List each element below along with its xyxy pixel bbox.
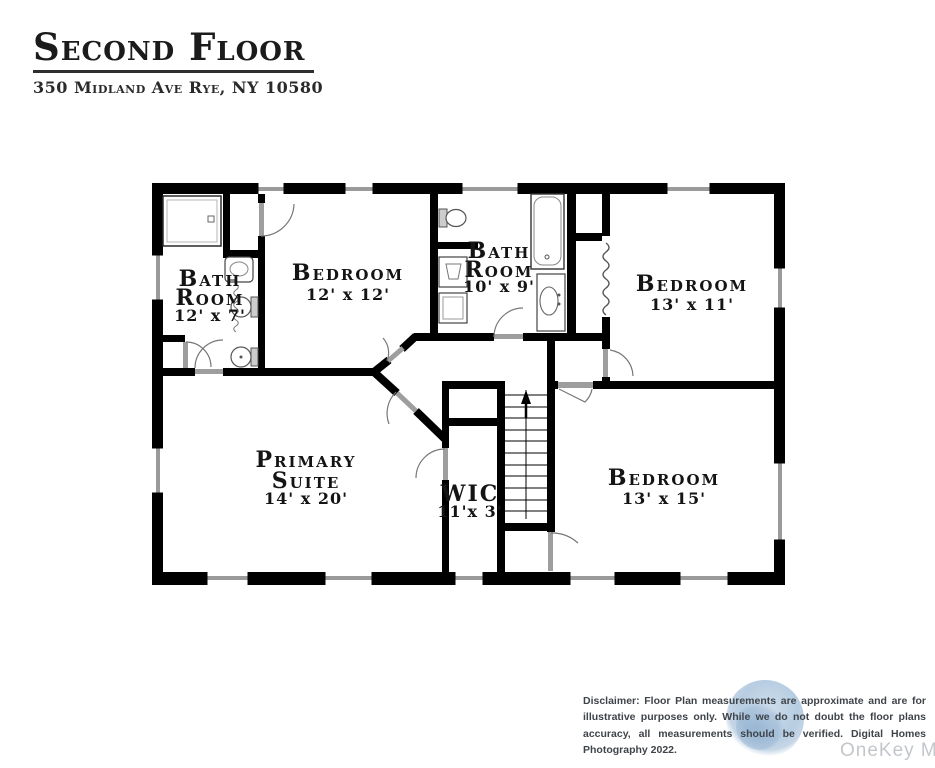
wall-segment xyxy=(449,418,497,426)
room-dims-bedroom-13x15: 13' x 15' xyxy=(622,489,706,508)
room-dims-bedroom-13x11: 13' x 11' xyxy=(650,295,734,314)
door xyxy=(416,445,449,483)
staircase xyxy=(505,390,547,519)
wall-segment xyxy=(414,333,494,341)
window xyxy=(774,266,785,310)
onekey-mls-watermark: OneKey MLS xyxy=(840,740,935,762)
vanity xyxy=(537,274,565,331)
room-dims-bedroom-12x12: 12' x 12' xyxy=(306,285,390,304)
room-dims-wic: 11'x 3' xyxy=(437,502,502,521)
floor-plan-drawing: Bath Room 12' x 7' Bedroom 12' x 12' Bat… xyxy=(0,0,935,768)
wall-segment xyxy=(430,193,438,341)
wall-segment xyxy=(152,183,163,585)
wall-segment xyxy=(523,333,610,341)
room-dims-bath-mid: 10' x 9' xyxy=(463,277,535,296)
wall-segment xyxy=(442,381,505,389)
toilet-tank xyxy=(251,297,258,317)
door xyxy=(555,381,596,402)
door xyxy=(258,200,294,239)
door xyxy=(602,346,633,380)
stairs-up-arrow-head xyxy=(521,390,531,404)
window xyxy=(665,183,712,194)
toilet-tank xyxy=(251,348,258,366)
wall-segment xyxy=(416,411,446,440)
window xyxy=(152,253,163,302)
window xyxy=(774,461,785,542)
wall-segment xyxy=(374,372,397,393)
wall-segment xyxy=(223,368,376,376)
bifold-closet-door xyxy=(603,243,609,315)
wall-segment xyxy=(547,341,555,532)
wall-segment xyxy=(602,381,775,389)
wall-segment xyxy=(576,233,602,241)
wall-segment xyxy=(602,317,610,349)
wall-segment xyxy=(602,193,610,236)
door xyxy=(387,392,416,424)
room-label-bedroom-12x12: Bedroom xyxy=(292,260,404,286)
window xyxy=(568,572,617,585)
window xyxy=(256,183,286,194)
window xyxy=(460,183,520,194)
door xyxy=(491,308,526,341)
room-dims-primary-suite: 14' x 20' xyxy=(264,489,348,508)
window xyxy=(453,572,485,585)
toilet-flush xyxy=(240,356,243,359)
room-label-bedroom-13x11: Bedroom xyxy=(636,271,748,297)
floor-plan-page: Second Floor 350 Midland Ave Rye, NY 105… xyxy=(0,0,935,768)
wall-segment xyxy=(163,335,185,342)
window xyxy=(343,183,375,194)
faucet-dot xyxy=(558,303,561,306)
door xyxy=(547,529,578,571)
wall-segment xyxy=(505,523,547,531)
wall-segment xyxy=(402,336,416,349)
door xyxy=(183,342,211,368)
window xyxy=(678,572,730,585)
wall-segment xyxy=(497,381,505,573)
toilet-bowl xyxy=(446,210,466,227)
window xyxy=(323,572,374,585)
room-dims-bath-left: 12' x 7' xyxy=(174,306,246,325)
wall-segment xyxy=(163,368,195,376)
window xyxy=(205,572,250,585)
shower-drain xyxy=(208,216,214,222)
wall-segment xyxy=(567,193,576,341)
bathtub xyxy=(531,194,564,269)
faucet-dot xyxy=(558,294,561,297)
wall-segment xyxy=(223,193,230,250)
angled-walls xyxy=(374,336,446,440)
wall-segment xyxy=(258,236,265,372)
room-label-bedroom-13x15: Bedroom xyxy=(608,465,720,491)
window xyxy=(152,446,163,495)
